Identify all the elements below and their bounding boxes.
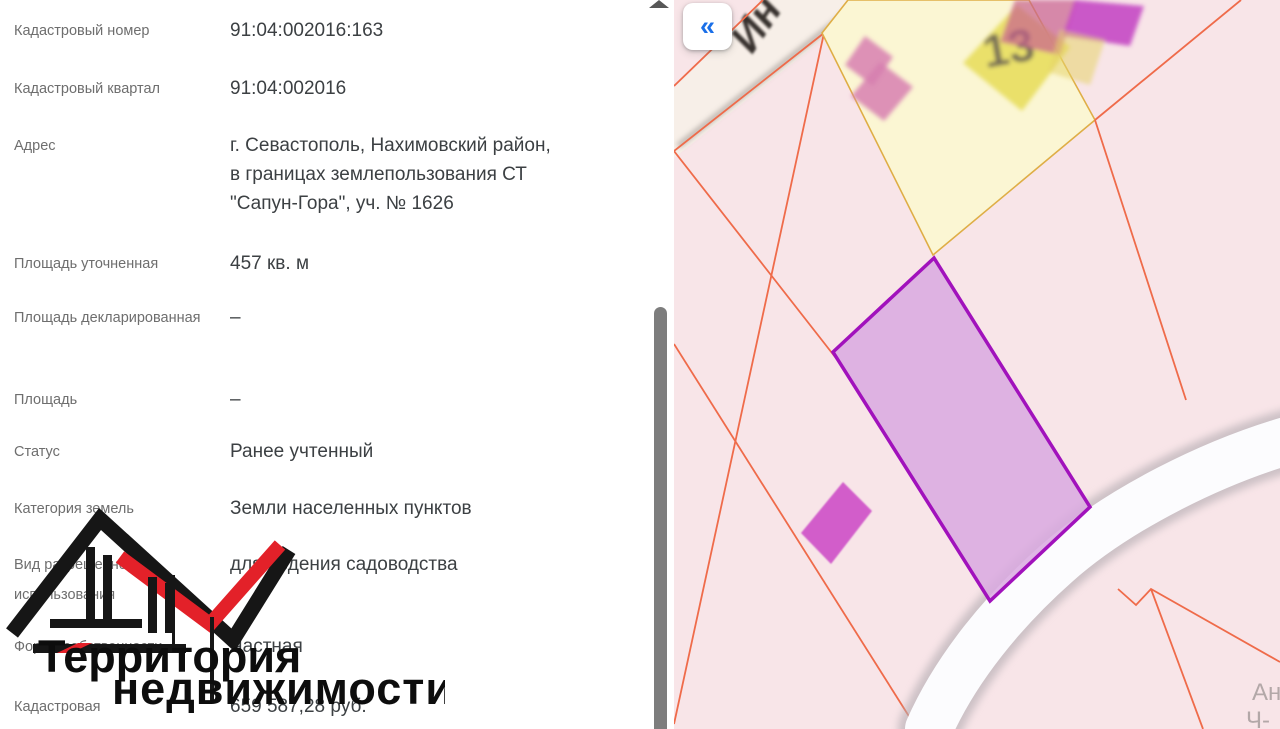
field-value: – [230, 303, 241, 333]
property-info-panel: Кадастровый номер 91:04:002016:163 Кадас… [0, 0, 674, 729]
field-label: Форма собственности [14, 632, 230, 662]
corner-label-2: Ч- [1246, 707, 1270, 729]
field-label: Площадь уточненная [14, 249, 230, 279]
field-value: Земли населенных пунктов [230, 494, 472, 524]
field-value: 659 587,28 руб. [230, 692, 367, 722]
field-label: Площадь [14, 385, 230, 415]
field-value: Частная [230, 632, 303, 662]
scrollbar-thumb[interactable] [654, 307, 667, 729]
field-row-area-declared: Площадь декларированная – [14, 303, 646, 333]
field-value: г. Севастополь, Нахимовский район, в гра… [230, 131, 551, 218]
field-row-address: Адрес г. Севастополь, Нахимовский район,… [14, 131, 646, 218]
field-label: Кадастровая [14, 692, 230, 722]
field-row-cadastral-number: Кадастровый номер 91:04:002016:163 [14, 16, 646, 46]
field-label: Адрес [14, 131, 230, 218]
app-root: Кадастровый номер 91:04:002016:163 Кадас… [0, 0, 1280, 729]
field-row-status: Статус Ранее учтенный [14, 437, 646, 467]
field-row-area-refined: Площадь уточненная 457 кв. м [14, 249, 646, 279]
field-label: Категория земель [14, 494, 230, 524]
field-label: Кадастровый номер [14, 16, 230, 46]
field-row-land-category: Категория земель Земли населенных пункто… [14, 494, 646, 524]
field-value: Ранее учтенный [230, 437, 373, 467]
field-row-permitted-use: Вид разрешенного использования для веден… [14, 550, 646, 610]
field-value: 91:04:002016:163 [230, 16, 383, 46]
map-canvas[interactable]: Ин 13 [674, 0, 1280, 729]
field-value: для ведения садоводства [230, 550, 458, 610]
map-panel: Ин 13 [674, 0, 1280, 729]
field-label: Кадастровый квартал [14, 74, 230, 104]
field-label: Площадь декларированная [14, 303, 230, 333]
collapse-panel-button[interactable]: « [683, 3, 732, 50]
field-row-area: Площадь – [14, 385, 646, 415]
chevron-double-left-icon: « [700, 11, 715, 42]
field-label: Вид разрешенного использования [14, 550, 230, 610]
field-value: – [230, 385, 241, 415]
corner-label-1: Ан [1252, 679, 1280, 706]
field-row-cadastral-value: Кадастровая 659 587,28 руб. [14, 692, 646, 722]
field-row-cadastral-quarter: Кадастровый квартал 91:04:002016 [14, 74, 646, 104]
field-row-ownership-form: Форма собственности Частная [14, 632, 646, 662]
field-value: 457 кв. м [230, 249, 309, 279]
scroll-up-arrow[interactable] [649, 0, 669, 8]
field-label: Статус [14, 437, 230, 467]
field-value: 91:04:002016 [230, 74, 346, 104]
